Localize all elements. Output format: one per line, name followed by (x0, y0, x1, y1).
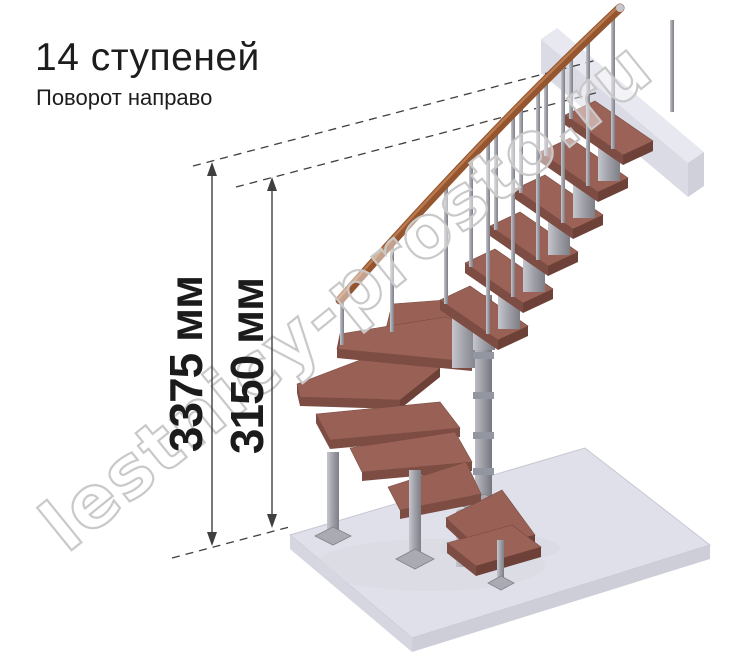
dimension-label-top-step-height: 3150 мм (221, 278, 273, 454)
dashed-line-floor-level (172, 526, 293, 558)
winder-steps-lower (316, 402, 481, 519)
arrow-up-icon (207, 162, 217, 176)
landing-guard-post (670, 20, 674, 112)
page-title: 14 ступеней (35, 36, 260, 80)
dimension-label-total-height: 3375 мм (160, 276, 212, 452)
page-subtitle: Поворот направо (36, 85, 212, 111)
dimension-3150: 3150 мм (221, 177, 277, 528)
screenshot-root: lestnicy-prosto.ru 3375 мм 3150 мм 14 ст… (0, 0, 743, 655)
handrail-end-cap (616, 4, 624, 12)
arrow-down-icon (267, 514, 277, 528)
arrow-down-icon (207, 532, 217, 546)
